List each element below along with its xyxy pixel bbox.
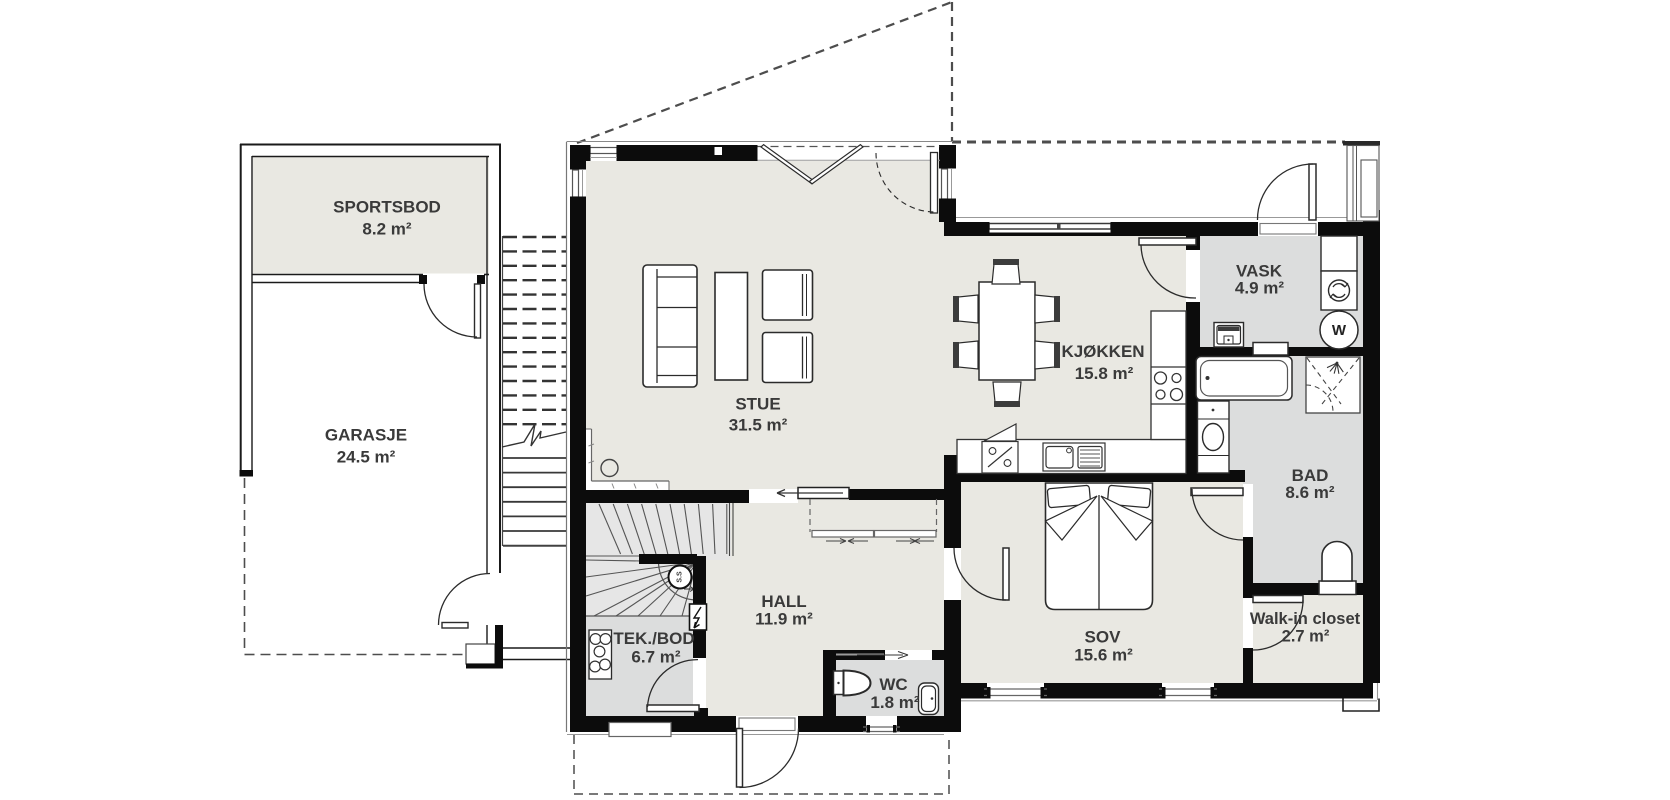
svg-text:W: W — [1332, 322, 1347, 339]
svg-text:SOV: SOV — [1085, 628, 1122, 647]
svg-text:Walk-in closet: Walk-in closet — [1250, 610, 1361, 628]
svg-text:GARASJE: GARASJE — [325, 426, 407, 445]
svg-text:S.S: S.S — [677, 571, 684, 583]
svg-text:STUE: STUE — [735, 395, 780, 414]
svg-text:SPORTSBOD: SPORTSBOD — [333, 198, 441, 217]
svg-text:WC: WC — [879, 675, 907, 694]
svg-text:6.7 m²: 6.7 m² — [631, 648, 680, 667]
svg-text:8.2 m²: 8.2 m² — [362, 220, 411, 239]
svg-text:15.6 m²: 15.6 m² — [1074, 646, 1133, 665]
svg-text:1.8 m²: 1.8 m² — [870, 693, 919, 712]
svg-text:24.5 m²: 24.5 m² — [337, 448, 396, 467]
svg-text:TEK./BOD: TEK./BOD — [613, 629, 694, 648]
svg-text:8.6 m²: 8.6 m² — [1285, 483, 1334, 502]
svg-text:HALL: HALL — [761, 592, 806, 611]
svg-text:KJØKKEN: KJØKKEN — [1061, 342, 1144, 361]
svg-text:2.7 m²: 2.7 m² — [1282, 628, 1330, 646]
svg-text:15.8 m²: 15.8 m² — [1075, 364, 1134, 383]
svg-text:31.5 m²: 31.5 m² — [729, 416, 788, 435]
svg-text:4.9 m²: 4.9 m² — [1235, 279, 1284, 298]
svg-text:11.9 m²: 11.9 m² — [755, 610, 813, 629]
